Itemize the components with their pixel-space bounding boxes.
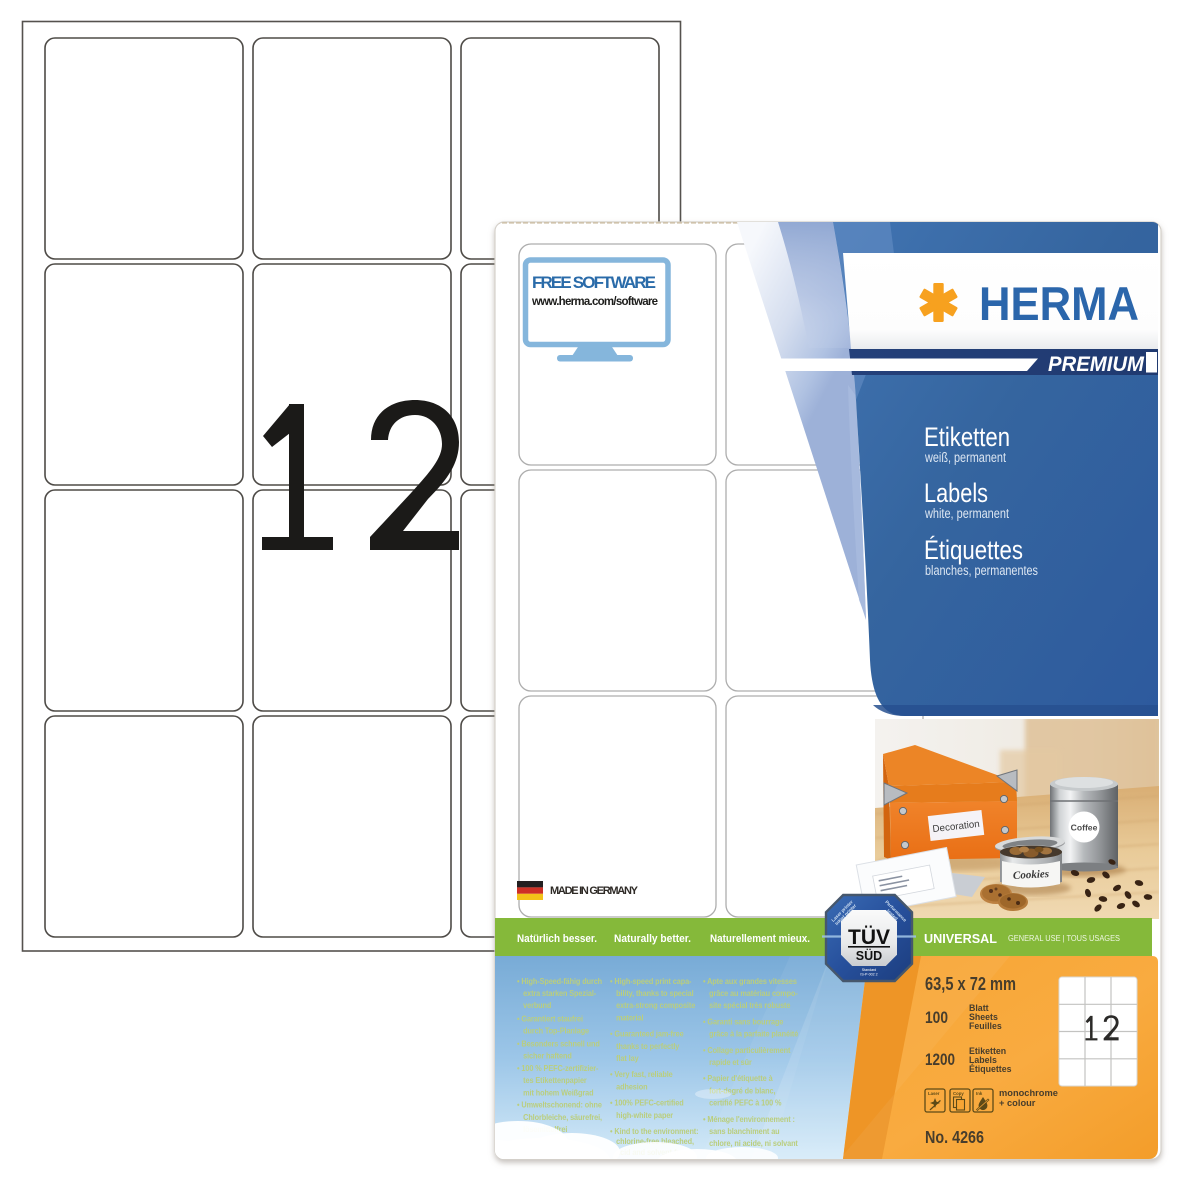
svg-text:Etiketten: Etiketten [924, 422, 1010, 452]
svg-text:weiß, permanent: weiß, permanent [924, 450, 1006, 465]
svg-text:TÜV: TÜV [848, 926, 890, 949]
svg-text:grâce au matériau compo-: grâce au matériau compo- [709, 989, 798, 999]
svg-text:• 100 % PEFC-zertifizier-: • 100 % PEFC-zertifizier- [517, 1064, 599, 1074]
svg-text:1200: 1200 [925, 1050, 955, 1069]
svg-text:• High-Speed-fähig durch: • High-Speed-fähig durch [517, 977, 602, 987]
svg-text:• Besonders schnell und: • Besonders schnell und [517, 1039, 600, 1049]
svg-text:Étiquettes: Étiquettes [969, 1064, 1012, 1074]
svg-text:Étiquettes: Étiquettes [924, 535, 1023, 565]
svg-text:high-white paper: high-white paper [616, 1110, 673, 1120]
svg-text:rapide et sûr: rapide et sûr [709, 1058, 752, 1068]
svg-text:IS-P-002 2: IS-P-002 2 [860, 973, 877, 977]
svg-text:• Guaranteed jam-free: • Guaranteed jam-free [610, 1029, 684, 1039]
svg-text:thanks to perfectly: thanks to perfectly [616, 1041, 680, 1051]
svg-text:• 100% PEFC-certified: • 100% PEFC-certified [610, 1098, 684, 1108]
svg-text:• Very fast, reliable: • Very fast, reliable [610, 1070, 673, 1080]
svg-text:certifié PEFC à 100 %: certifié PEFC à 100 % [709, 1098, 781, 1108]
svg-text:• Garanti sans bourrage: • Garanti sans bourrage [703, 1017, 784, 1027]
svg-text:white, permanent: white, permanent [924, 506, 1009, 521]
svg-text:• High-speed print capa-: • High-speed print capa- [610, 977, 692, 987]
svg-text:Standard: Standard [862, 968, 877, 972]
svg-text:Ink: Ink [976, 1091, 983, 1096]
svg-text:UNIVERSAL: UNIVERSAL [924, 932, 997, 946]
svg-text:mit hohem Weißgrad: mit hohem Weißgrad [523, 1088, 594, 1098]
svg-text:durch Top-Planlage: durch Top-Planlage [523, 1026, 590, 1036]
svg-text:blanches, permanentes: blanches, permanentes [925, 563, 1038, 578]
svg-text:63,5 x 72 mm: 63,5 x 72 mm [925, 973, 1016, 994]
svg-text:Coffee: Coffee [1071, 823, 1098, 833]
svg-text:100: 100 [925, 1008, 948, 1027]
svg-text:tes Etikettenpapier: tes Etikettenpapier [523, 1076, 587, 1086]
svg-text:+ colour: + colour [999, 1098, 1036, 1108]
svg-text:FREE SOFTWARE: FREE SOFTWARE [532, 273, 656, 292]
svg-text:• Umweltschonend: ohne: • Umweltschonend: ohne [517, 1100, 603, 1110]
svg-text:chlore, ni acide, ni solvant: chlore, ni acide, ni solvant [709, 1139, 798, 1149]
svg-text:extra-strong composite: extra-strong composite [616, 1001, 696, 1011]
svg-text:PREMIUM: PREMIUM [1048, 353, 1144, 376]
svg-text:SÜD: SÜD [856, 948, 882, 963]
svg-text:• Ménage l'environnement :: • Ménage l'environnement : [703, 1114, 795, 1124]
svg-text:monochrome: monochrome [999, 1088, 1058, 1098]
svg-text:• Garantiert staufrei: • Garantiert staufrei [517, 1014, 583, 1024]
svg-text:Copy: Copy [953, 1091, 964, 1096]
svg-text:Naturally better.: Naturally better. [614, 933, 691, 945]
svg-text:Laser: Laser [928, 1091, 940, 1096]
svg-text:Chlorbleiche, säurefrei,: Chlorbleiche, säurefrei, [523, 1112, 602, 1122]
svg-text:GENERAL USE | TOUS USAGES: GENERAL USE | TOUS USAGES [1008, 934, 1120, 943]
svg-text:Naturellement mieux.: Naturellement mieux. [710, 933, 810, 945]
svg-text:www.herma.com/software: www.herma.com/software [531, 296, 658, 308]
svg-text:• Collage particulièrement: • Collage particulièrement [703, 1045, 791, 1055]
svg-text:material: material [616, 1013, 643, 1023]
svg-text:verbund: verbund [523, 1001, 551, 1011]
svg-text:site spécial très robuste: site spécial très robuste [709, 1001, 791, 1011]
svg-text:Cookies: Cookies [1013, 868, 1050, 882]
svg-text:adhesion: adhesion [616, 1082, 648, 1092]
svg-text:• Kind to the environment:: • Kind to the environment: [610, 1127, 698, 1137]
svg-text:sans blanchiment au: sans blanchiment au [709, 1127, 780, 1137]
svg-text:Labels: Labels [924, 478, 988, 508]
svg-text:No. 4266: No. 4266 [925, 1127, 984, 1147]
svg-text:HERMA: HERMA [979, 277, 1139, 330]
svg-text:Feuilles: Feuilles [969, 1021, 1002, 1031]
svg-text:grâce à la parfaite planéité: grâce à la parfaite planéité [709, 1029, 799, 1039]
svg-text:MADE IN GERMANY: MADE IN GERMANY [550, 885, 639, 897]
svg-text:flat lay: flat lay [616, 1054, 639, 1064]
svg-text:Natürlich besser.: Natürlich besser. [517, 933, 597, 945]
svg-text:bility, thanks to special: bility, thanks to special [616, 989, 693, 999]
svg-text:sicher haftend: sicher haftend [523, 1051, 572, 1061]
svg-text:• Papier d'étiquette à: • Papier d'étiquette à [703, 1074, 773, 1084]
svg-text:extra starken Spezial-: extra starken Spezial- [523, 989, 596, 999]
svg-text:• Apte aux grandes vitesses: • Apte aux grandes vitesses [703, 977, 798, 987]
